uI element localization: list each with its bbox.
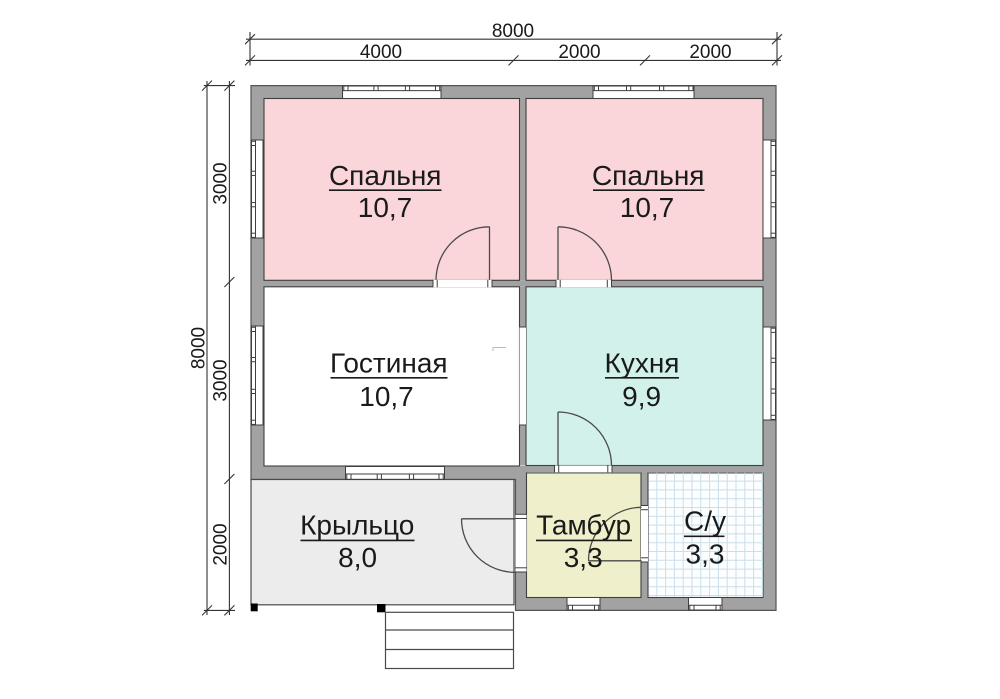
svg-text:4000: 4000 bbox=[360, 42, 402, 63]
svg-text:2000: 2000 bbox=[211, 523, 232, 565]
svg-text:Гостиная: Гостиная bbox=[330, 347, 448, 378]
svg-text:3000: 3000 bbox=[211, 162, 232, 204]
svg-text:10,7: 10,7 bbox=[620, 192, 675, 223]
svg-text:10,7: 10,7 bbox=[359, 381, 414, 412]
svg-text:8000: 8000 bbox=[189, 327, 210, 369]
svg-text:10,7: 10,7 bbox=[358, 192, 413, 223]
svg-text:Спальня: Спальня bbox=[329, 160, 442, 191]
svg-text:8000: 8000 bbox=[492, 21, 534, 42]
svg-text:3,3: 3,3 bbox=[564, 542, 603, 573]
svg-text:3000: 3000 bbox=[211, 359, 232, 401]
svg-text:3,3: 3,3 bbox=[686, 538, 725, 569]
svg-text:Спальня: Спальня bbox=[592, 160, 705, 191]
svg-text:Крыльцо: Крыльцо bbox=[300, 509, 414, 540]
svg-text:2000: 2000 bbox=[558, 42, 600, 63]
svg-text:2000: 2000 bbox=[689, 42, 731, 63]
svg-text:8,0: 8,0 bbox=[338, 542, 377, 573]
svg-text:Кухня: Кухня bbox=[605, 347, 680, 378]
svg-text:9,9: 9,9 bbox=[622, 381, 661, 412]
svg-text:С/у: С/у bbox=[684, 505, 726, 536]
svg-text:Тамбур: Тамбур bbox=[536, 509, 631, 540]
